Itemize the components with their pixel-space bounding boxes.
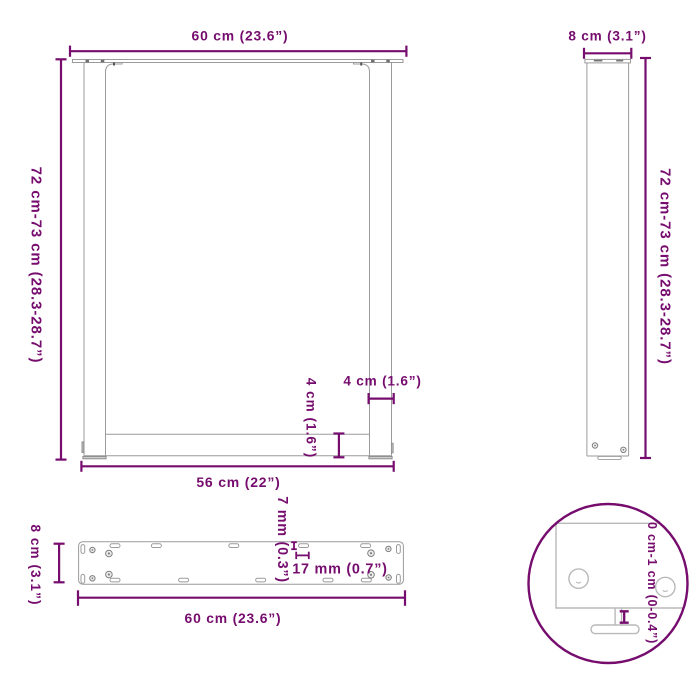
svg-text:4 cm (1.6”): 4 cm (1.6”) [303,378,318,459]
svg-text:8 cm (3.1”): 8 cm (3.1”) [568,29,646,44]
svg-text:60 cm (23.6”): 60 cm (23.6”) [185,610,282,626]
svg-text:0 cm-1 cm (0-0.4”): 0 cm-1 cm (0-0.4”) [645,522,659,644]
svg-text:4 cm (1.6”): 4 cm (1.6”) [343,374,421,389]
svg-text:72 cm-73 cm (28.3-28.7”): 72 cm-73 cm (28.3-28.7”) [28,167,45,364]
svg-text:60 cm (23.6”): 60 cm (23.6”) [192,27,289,43]
svg-text:7 mm (0.3”): 7 mm (0.3”) [274,496,290,583]
svg-text:8 cm (3.1”): 8 cm (3.1”) [28,524,43,605]
svg-text:17 mm (0.7”): 17 mm (0.7”) [292,562,387,578]
svg-text:72 cm-73 cm (28.3-28.7”): 72 cm-73 cm (28.3-28.7”) [657,168,674,365]
svg-text:56 cm (22”): 56 cm (22”) [196,474,280,490]
